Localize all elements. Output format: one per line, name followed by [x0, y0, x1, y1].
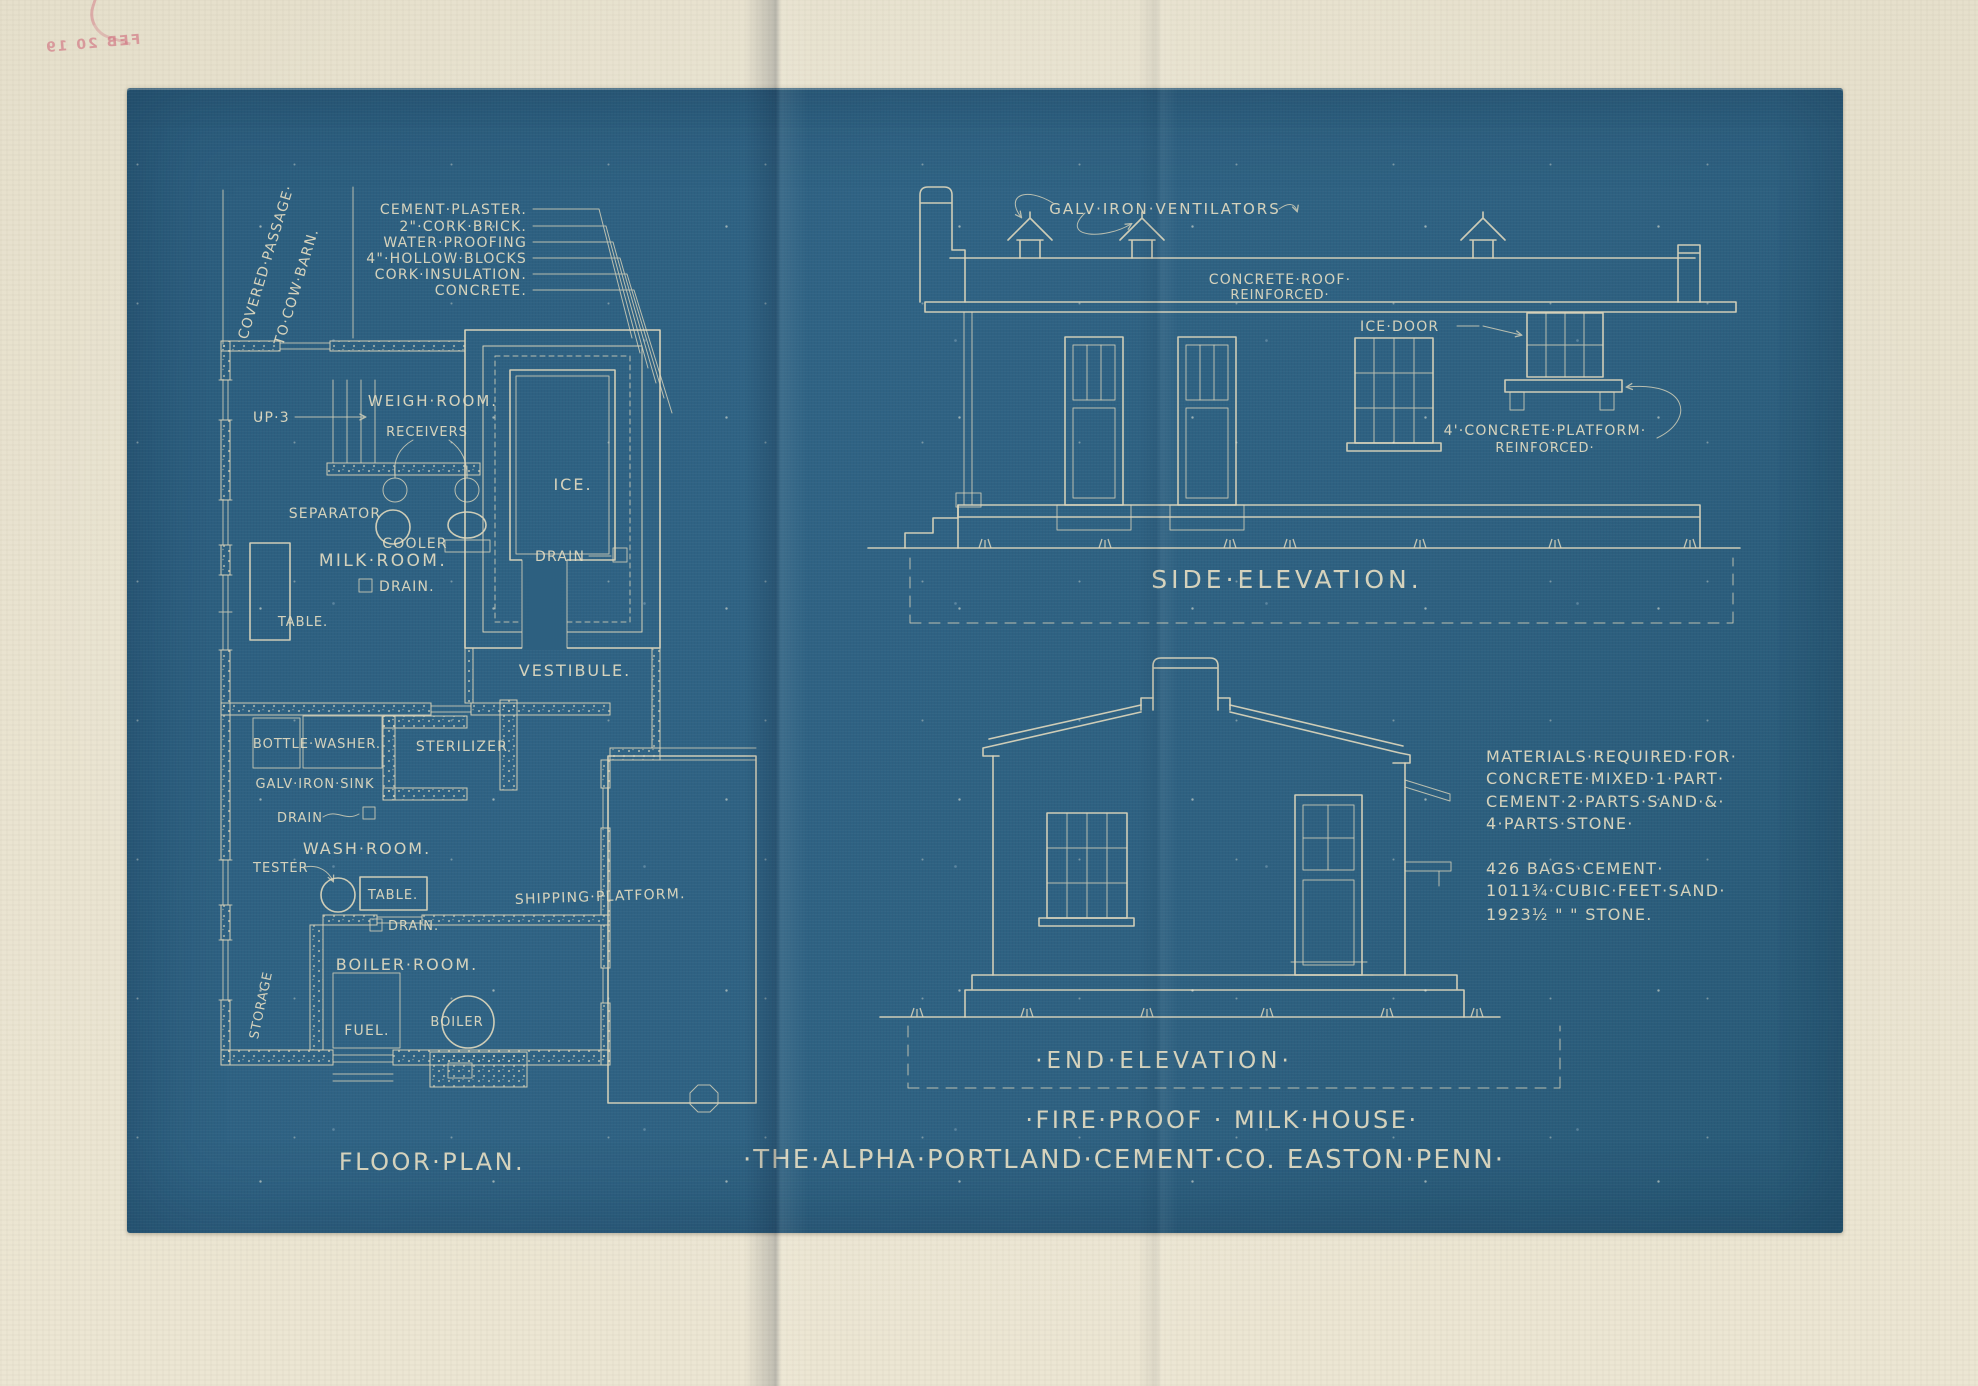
- wash-drain-label: Drain.: [388, 919, 439, 934]
- ice-door-platform: [1505, 380, 1622, 392]
- materials-line-1: Materials·Required·For·: [1486, 747, 1737, 766]
- wall-layer-callouts: Cement·Plaster. 2"·Cork·Brick. Water·Pro…: [366, 202, 672, 413]
- end-base: [965, 975, 1464, 1017]
- weigh-room: Up·3 Weigh·Room. Receivers Separator Coo…: [250, 380, 498, 640]
- floor-plan: Covered·Passage· to·Cow·Barn. Cement·Pla…: [219, 183, 756, 1176]
- layer-cement-plaster: Cement·Plaster.: [380, 202, 527, 218]
- platform-label-2: Reinforced·: [1495, 441, 1594, 456]
- end-roof-left: [983, 705, 1141, 756]
- shipping-platform-label: Shipping·Platform.: [515, 886, 686, 908]
- roof-ventilators: [1008, 212, 1505, 258]
- materials-line-2: Concrete·Mixed·1·Part·: [1486, 769, 1724, 788]
- platform-octagon: [690, 1085, 718, 1112]
- ventilators-label: Galv·Iron·Ventilators: [1049, 200, 1281, 218]
- wash-room-label: Wash·Room.: [303, 839, 431, 858]
- ice-door: [1505, 313, 1681, 438]
- layer-cork-brick: 2"·Cork·Brick.: [399, 219, 527, 235]
- boiler-room-label: Boiler·Room.: [336, 955, 478, 974]
- end-roof-right: [1230, 705, 1410, 763]
- concrete-roof-label: Concrete·Roof·: [1209, 272, 1352, 288]
- boiler-label: Boiler: [430, 1015, 483, 1030]
- fuel-label: Fuel.: [344, 1023, 389, 1039]
- wash-room: Bottle·Washer. Sterilizer Galv·Iron·Sink…: [252, 700, 517, 934]
- side-elevation: Galv·Iron·Ventilators Concrete·Roof· Rei…: [868, 187, 1740, 623]
- tester-circle: [321, 878, 355, 912]
- receivers-label: Receivers: [386, 425, 468, 440]
- milk-table-label: Table.: [277, 615, 328, 630]
- storage-label: Storage: [247, 970, 276, 1041]
- ice-door-label: Ice·Door: [1360, 319, 1439, 335]
- milk-drain-square: [359, 579, 372, 592]
- cooler-label: Cooler: [382, 536, 447, 552]
- end-elevation-title: ·End·Elevation·: [1035, 1048, 1293, 1074]
- receivers-bench: [327, 463, 480, 475]
- right-cap-block: [1678, 245, 1700, 302]
- weigh-room-label: Weigh·Room.: [368, 392, 498, 410]
- roof-slab: [925, 302, 1736, 312]
- sink-label: Galv·Iron·Sink: [255, 777, 374, 792]
- cooler-circle: [448, 512, 486, 538]
- side-elevation-title: Side·Elevation.: [1151, 565, 1422, 594]
- end-platform-edge: [1405, 862, 1451, 871]
- chimney: [920, 187, 965, 302]
- end-elevation: ·End·Elevation·: [880, 658, 1560, 1088]
- side-steps: [905, 505, 958, 548]
- end-window: [1039, 813, 1134, 926]
- ice-label: Ice.: [553, 475, 592, 494]
- platform-label-1: 4'·Concrete·Platform·: [1444, 423, 1647, 439]
- layer-water-proofing: Water·Proofing: [383, 235, 527, 251]
- tester-label: Tester: [252, 861, 309, 876]
- wash-table-label: Table.: [367, 888, 418, 903]
- materials-note: Materials·Required·For· Concrete·Mixed·1…: [1486, 747, 1737, 924]
- bottle-washer-label: Bottle·Washer.: [253, 737, 381, 752]
- end-chimney: [1153, 658, 1218, 710]
- title-block: ·Fire·Proof · Milk·House· ·The·Alpha·Por…: [743, 1106, 1505, 1175]
- separator-label: Separator: [289, 506, 382, 522]
- end-walls: [993, 756, 1405, 975]
- layer-cork-insulation: Cork·Insulation.: [375, 267, 527, 283]
- chimney-shoulders: [1141, 698, 1230, 710]
- materials-line-5: 426 Bags·Cement·: [1486, 859, 1664, 878]
- end-door: [1285, 795, 1373, 975]
- sheet-title-line-1: ·Fire·Proof · Milk·House·: [1025, 1106, 1418, 1134]
- sterilizer-label: Sterilizer: [416, 739, 508, 755]
- sheet-title-line-2: ·The·Alpha·Portland·Cement·Co. Easton·Pe…: [743, 1145, 1505, 1175]
- blueprint-sheet: Covered·Passage· to·Cow·Barn. Cement·Pla…: [127, 88, 1843, 1233]
- layer-concrete: Concrete.: [435, 283, 527, 299]
- materials-line-4: 4·Parts·Stone·: [1486, 814, 1634, 833]
- boiler-room: Boiler·Room. Storage Fuel. Boiler: [247, 955, 494, 1048]
- sink-drain-label: Drain: [277, 811, 323, 826]
- plan-walls: [219, 341, 660, 1087]
- side-base: [958, 505, 1700, 548]
- blueprint-drawing: Covered·Passage· to·Cow·Barn. Cement·Pla…: [127, 88, 1843, 1233]
- milk-drain-label: Drain.: [379, 579, 435, 595]
- side-door-1: [1065, 337, 1123, 505]
- end-canopy: [1405, 780, 1450, 801]
- side-door-2: [1178, 337, 1236, 505]
- ice-room: Ice. Drain: [465, 330, 660, 650]
- floor-plan-title: Floor·Plan.: [339, 1148, 525, 1176]
- reinforced-label: Reinforced·: [1230, 288, 1329, 303]
- milk-room-label: Milk·Room.: [319, 551, 447, 571]
- scanned-blueprint-page: FEB 20 19 Covered·Passage· to·Cow·Ba: [0, 0, 1978, 1386]
- up-label: Up·3: [253, 410, 290, 426]
- ice-drain-label: Drain: [535, 549, 585, 565]
- layer-hollow-blocks: 4"·Hollow·Blocks: [366, 251, 527, 267]
- porch-post: [964, 312, 972, 505]
- materials-line-7: 1923½ " " Stone.: [1486, 905, 1653, 924]
- materials-line-3: Cement·2·Parts·Sand·&·: [1486, 792, 1725, 811]
- sink-drain-square: [363, 807, 375, 819]
- side-window: [1347, 338, 1441, 451]
- materials-line-6: 1011¾·Cubic·Feet·Sand·: [1486, 881, 1726, 900]
- callout-leaders: [533, 209, 672, 413]
- vestibule-label: Vestibule.: [519, 661, 632, 680]
